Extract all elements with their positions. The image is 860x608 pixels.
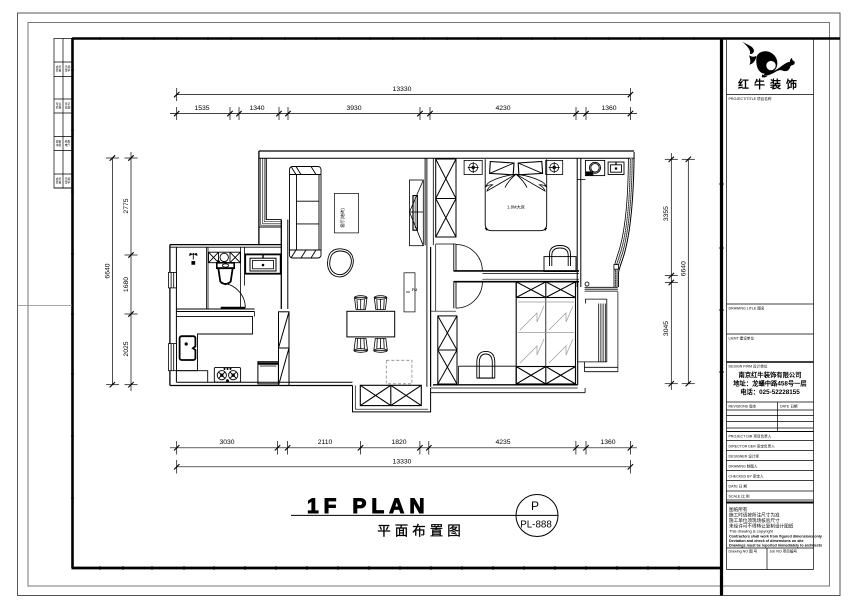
svg-text:DIRECTOR DER 审定负责人: DIRECTOR DER 审定负责人: [729, 444, 776, 449]
svg-text:2110: 2110: [318, 439, 333, 446]
svg-text:DESIGNER 设计师: DESIGNER 设计师: [729, 454, 760, 459]
svg-text:DESIGN FIRM 设计单位: DESIGN FIRM 设计单位: [729, 364, 768, 369]
svg-text:南京红牛装饰有限公司: 南京红牛装饰有限公司: [739, 370, 802, 379]
svg-text:3045: 3045: [663, 321, 670, 336]
svg-text:1360: 1360: [601, 105, 616, 112]
svg-text:栏目: 栏目: [56, 69, 62, 73]
svg-text:REVISIONS 版本: REVISIONS 版本: [729, 404, 757, 409]
svg-text:签字: 签字: [65, 69, 71, 73]
svg-text:Deviation and check of dimensi: Deviation and check of dimensions on sit…: [729, 539, 804, 543]
svg-text:Job NO 项目编号: Job NO 项目编号: [770, 549, 798, 554]
svg-text:客厅(地砖): 客厅(地砖): [339, 208, 346, 228]
svg-text:1360: 1360: [600, 439, 615, 446]
svg-text:1F PLAN: 1F PLAN: [307, 495, 430, 518]
svg-text:电气: 电气: [65, 143, 71, 147]
svg-text:4230: 4230: [495, 105, 510, 112]
svg-text:CHECKED BY 审定人: CHECKED BY 审定人: [729, 474, 764, 479]
svg-text:3930: 3930: [346, 105, 361, 112]
svg-text:2025: 2025: [123, 341, 130, 356]
svg-text:2775: 2775: [123, 198, 130, 213]
svg-text:DRAWING LITLE 图名: DRAWING LITLE 图名: [729, 306, 765, 311]
svg-text:P: P: [531, 499, 539, 513]
svg-text:平面布置图: 平面布置图: [377, 524, 465, 539]
svg-text:3355: 3355: [663, 206, 670, 221]
svg-text:1.8M大床: 1.8M大床: [507, 204, 525, 211]
svg-text:签字: 签字: [65, 181, 71, 185]
svg-text:1535: 1535: [194, 105, 209, 112]
svg-text:Contractors shall work from fi: Contractors shall work from figured dime…: [729, 535, 823, 539]
svg-text:1820: 1820: [391, 439, 406, 446]
svg-text:6640: 6640: [681, 261, 688, 276]
svg-text:Drawing NO 图 号: Drawing NO 图 号: [729, 549, 758, 554]
svg-text:LIENT 建设单位: LIENT 建设单位: [729, 336, 755, 341]
svg-text:DRAWING 制图人: DRAWING 制图人: [729, 464, 758, 469]
svg-text:6640: 6640: [105, 263, 112, 278]
svg-text:13330: 13330: [393, 458, 412, 465]
svg-text:3030: 3030: [219, 439, 234, 446]
svg-text:4235: 4235: [495, 439, 510, 446]
svg-text:地址：龙蟠中路458号一层: 地址：龙蟠中路458号一层: [733, 379, 807, 388]
svg-text:栏目: 栏目: [56, 106, 62, 110]
svg-text:日期: 日期: [65, 106, 71, 110]
svg-text:PROJECT DIR 项目负责人: PROJECT DIR 项目负责人: [729, 434, 772, 439]
svg-text:红牛装饰: 红牛装饰: [738, 77, 802, 91]
svg-text:Drawings must be reported imme: Drawings must be reported immediately to…: [729, 544, 822, 548]
svg-text:电话：025-52228155: 电话：025-52228155: [740, 387, 800, 396]
svg-text:水暖: 水暖: [56, 143, 62, 147]
svg-text:栏目: 栏目: [56, 181, 62, 185]
svg-text:13330: 13330: [393, 86, 412, 93]
svg-text:PROJECT/TITLE 项目名称: PROJECT/TITLE 项目名称: [729, 96, 772, 101]
svg-text:This drawing is copyright: This drawing is copyright: [729, 529, 774, 534]
svg-text:1680: 1680: [123, 277, 130, 292]
svg-text:1340: 1340: [249, 105, 264, 112]
svg-text:DATE 日期: DATE 日期: [780, 404, 798, 409]
svg-text:DATE 日 期: DATE 日 期: [729, 484, 748, 489]
svg-text:SCALE 比 例: SCALE 比 例: [729, 494, 750, 499]
svg-text:PL-888: PL-888: [520, 520, 552, 531]
